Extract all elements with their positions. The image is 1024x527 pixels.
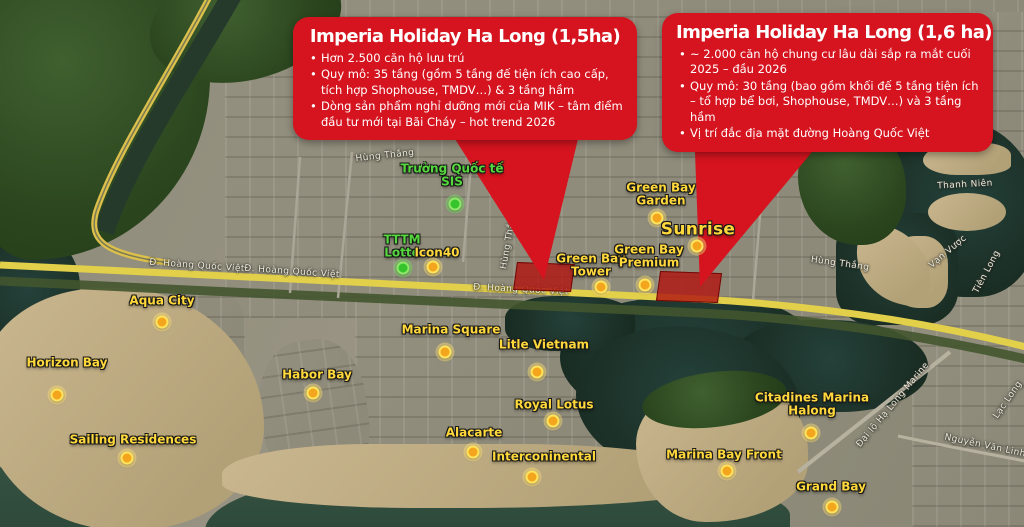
poi-label-sailing-residences[interactable]: Sailing Residences	[70, 433, 197, 446]
callout-bullet: ~ 2.000 căn hộ chung cư lâu dài sắp ra m…	[676, 47, 979, 78]
poi-marker-royal-lotus[interactable]	[547, 415, 560, 428]
callout-1-bullets: Hơn 2.500 căn hộ lưu trúQuy mô: 35 tầng …	[307, 51, 623, 130]
callout-imperia-1-6ha: Imperia Holiday Ha Long (1,6 ha) ~ 2.000…	[662, 13, 993, 152]
poi-marker-grand-bay[interactable]	[826, 501, 839, 514]
poi-marker-interconinental[interactable]	[526, 471, 539, 484]
poi-marker-habor-bay[interactable]	[307, 387, 320, 400]
poi-marker-green-bay-premium[interactable]	[639, 279, 652, 292]
callout-1-title: Imperia Holiday Ha Long (1,5ha)	[307, 26, 623, 47]
poi-label-truong-quoc-te-sis[interactable]: Trường Quốc tế SIS	[400, 163, 503, 190]
poi-label-habor-bay[interactable]: Habor Bay	[282, 368, 352, 381]
poi-marker-truong-quoc-te-sis[interactable]	[449, 198, 462, 211]
poi-label-sunrise[interactable]: Sunrise	[661, 220, 735, 239]
poi-marker-aqua-city[interactable]	[156, 316, 169, 329]
poi-label-marina-square[interactable]: Marina Square	[402, 323, 501, 336]
poi-label-litle-vietnam[interactable]: Litle Vietnam	[499, 338, 589, 351]
callout-bullet: Quy mô: 30 tầng (bao gồm khối đế 5 tầng …	[676, 79, 979, 125]
poi-marker-citadines-marina-halong[interactable]	[805, 427, 818, 440]
callout-bullet: Vị trí đắc địa mặt đường Hoàng Quốc Việt	[676, 126, 979, 141]
map-canvas[interactable]: Đ. Hoàng Quốc ViệtĐ. Hoàng Quốc ViệtĐ. H…	[0, 0, 1024, 527]
poi-marker-litle-vietnam[interactable]	[531, 366, 544, 379]
callout-imperia-1-5ha: Imperia Holiday Ha Long (1,5ha) Hơn 2.50…	[293, 17, 637, 140]
callout-bullet: Quy mô: 35 tầng (gồm 5 tầng đế tiện ích …	[307, 67, 623, 98]
poi-label-alacarte[interactable]: Alacarte	[446, 426, 503, 439]
poi-marker-tttm-lotte[interactable]	[397, 262, 410, 275]
poi-label-royal-lotus[interactable]: Royal Lotus	[514, 398, 593, 411]
poi-label-green-bay-premium[interactable]: Green Bay Premium	[614, 244, 683, 271]
poi-label-citadines-marina-halong[interactable]: Citadines Marina Halong	[755, 392, 869, 419]
poi-marker-sunrise[interactable]	[691, 240, 704, 253]
poi-marker-marina-bay-front[interactable]	[721, 465, 734, 478]
callout-bullet: Hơn 2.500 căn hộ lưu trú	[307, 51, 623, 66]
poi-label-horizon-bay[interactable]: Horizon Bay	[27, 356, 108, 369]
poi-label-grand-bay[interactable]: Grand Bay	[796, 480, 866, 493]
callout-2-bullets: ~ 2.000 căn hộ chung cư lâu dài sắp ra m…	[676, 47, 979, 141]
poi-marker-icon40[interactable]	[427, 261, 440, 274]
poi-marker-sailing-residences[interactable]	[121, 452, 134, 465]
poi-label-interconinental[interactable]: Interconinental	[492, 450, 596, 463]
poi-label-green-bay-garden[interactable]: Green Bay Garden	[626, 182, 695, 209]
poi-marker-horizon-bay[interactable]	[51, 389, 64, 402]
poi-label-icon40[interactable]: Icon40	[414, 246, 459, 259]
poi-marker-marina-square[interactable]	[439, 346, 452, 359]
callout-bullet: Dòng sản phẩm nghỉ dưỡng mới của MIK – t…	[307, 99, 623, 130]
poi-marker-green-bay-tower[interactable]	[595, 281, 608, 294]
poi-label-aqua-city[interactable]: Aqua City	[129, 294, 194, 307]
callout-2-title: Imperia Holiday Ha Long (1,6 ha)	[676, 22, 979, 43]
poi-label-marina-bay-front[interactable]: Marina Bay Front	[666, 448, 782, 461]
poi-marker-alacarte[interactable]	[467, 446, 480, 459]
